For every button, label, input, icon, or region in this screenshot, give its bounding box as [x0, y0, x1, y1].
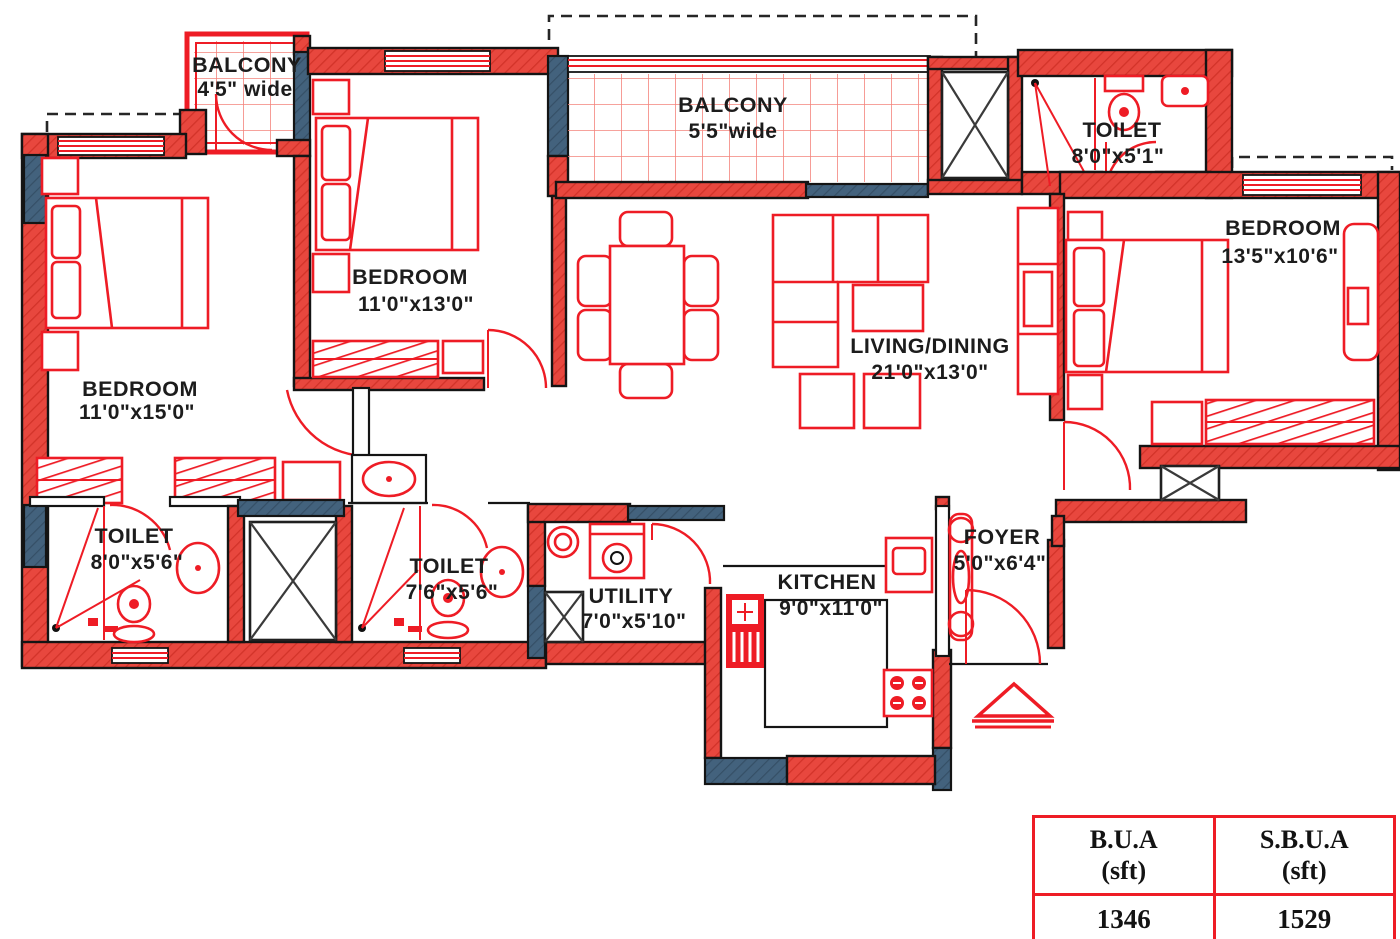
utility-shaft-icon — [545, 592, 583, 642]
sbua-value: 1529 — [1214, 895, 1395, 939]
utility-dims: 7'0"x5'10" — [582, 610, 687, 633]
kitchen-sink-icon — [886, 538, 932, 592]
sbua-title: S.B.U.A — [1220, 825, 1390, 856]
bedroom-left-dims: 11'0"x15'0" — [79, 401, 195, 424]
utility-label: UTILITY — [589, 584, 674, 608]
kitchen-dims: 9'0"x11'0" — [779, 597, 883, 620]
toilet-mid-door-arc — [432, 505, 487, 548]
toilet-bottom-mid-dims: 7'6"x5'6" — [406, 581, 499, 604]
area-table: B.U.A (sft) S.B.U.A (sft) 1346 1529 — [1032, 815, 1396, 939]
tv-unit-icon — [1018, 208, 1058, 394]
double-bed-right-icon — [1066, 212, 1228, 409]
corridor-basin-counter-icon — [352, 455, 426, 503]
double-bed-left-icon — [42, 158, 208, 370]
bedroom-top-label: BEDROOM — [352, 265, 468, 289]
balcony-top-center-dims: 5'5"wide — [689, 120, 778, 143]
sbua-unit: (sft) — [1220, 856, 1390, 887]
bedroom-left-label: BEDROOM — [82, 377, 198, 401]
living-dining-label: LIVING/DINING — [850, 334, 1009, 358]
toilet-bottom-mid-label: TOILET — [409, 554, 488, 578]
area-table-header-sbua: S.B.U.A (sft) — [1214, 817, 1395, 895]
dining-table-icon — [578, 212, 718, 398]
bua-unit: (sft) — [1039, 856, 1209, 887]
wardrobe-right-icon — [1152, 400, 1374, 444]
bedroom-top-dims: 11'0"x13'0" — [358, 293, 474, 316]
kitchen-label: KITCHEN — [777, 570, 876, 594]
bedroom-right-label: BEDROOM — [1225, 216, 1341, 240]
entrance-arrow-icon — [972, 684, 1054, 727]
floor-plan-page: BALCONY 4'5" wide BEDROOM 11'0"x13'0" BA… — [0, 0, 1400, 939]
foyer-door-arc — [966, 590, 1040, 664]
bedroom-right-dims: 13'5"x10'6" — [1221, 245, 1338, 268]
bua-value: 1346 — [1034, 895, 1215, 939]
elevator-bottom-icon — [238, 500, 344, 640]
area-table-header-row: B.U.A (sft) S.B.U.A (sft) — [1034, 817, 1395, 895]
area-table-header-bua: B.U.A (sft) — [1034, 817, 1215, 895]
toilet-top-right-label: TOILET — [1082, 118, 1161, 142]
bua-title: B.U.A — [1039, 825, 1209, 856]
balcony-top-left-label: BALCONY — [192, 53, 302, 77]
balcony-top-left-dims: 4'5" wide — [197, 78, 292, 101]
foyer-label: FOYER — [964, 525, 1041, 549]
toilet-left-wc-icon — [114, 586, 154, 642]
toilet-bottom-left-dims: 8'0"x5'6" — [91, 551, 184, 574]
bedroom-left-door-arc — [287, 388, 369, 460]
washbasin-icon — [1162, 76, 1208, 106]
kitchen-door-icon — [726, 594, 764, 668]
utility-door-arc — [652, 524, 710, 584]
coffee-table-icon — [853, 285, 923, 331]
washing-machine-icon — [590, 524, 644, 578]
wardrobe-top-bedroom-icon — [313, 341, 483, 377]
toilet-bottom-left-label: TOILET — [94, 524, 173, 548]
double-bed-top-icon — [313, 80, 478, 292]
toilet-top-right-dims: 8'0"x5'1" — [1072, 145, 1165, 168]
area-table-value-row: 1346 1529 — [1034, 895, 1395, 939]
stove-icon — [884, 670, 932, 716]
bedroom-top-door-arc — [488, 330, 546, 388]
utility-sink-icon — [548, 527, 578, 557]
living-dining-dims: 21'0"x13'0" — [871, 361, 988, 384]
balcony-top-center-label: BALCONY — [678, 93, 788, 117]
bedroom-right-door-arc — [1064, 422, 1130, 490]
floor-plan-drawing: BALCONY 4'5" wide BEDROOM 11'0"x13'0" BA… — [0, 0, 1400, 939]
elevator-top-icon — [928, 57, 1022, 194]
foyer-dims: 5'0"x6'4" — [954, 552, 1047, 575]
elevator-small-right-icon — [1161, 466, 1219, 500]
bedroom-right-seat-icon — [1344, 224, 1378, 360]
